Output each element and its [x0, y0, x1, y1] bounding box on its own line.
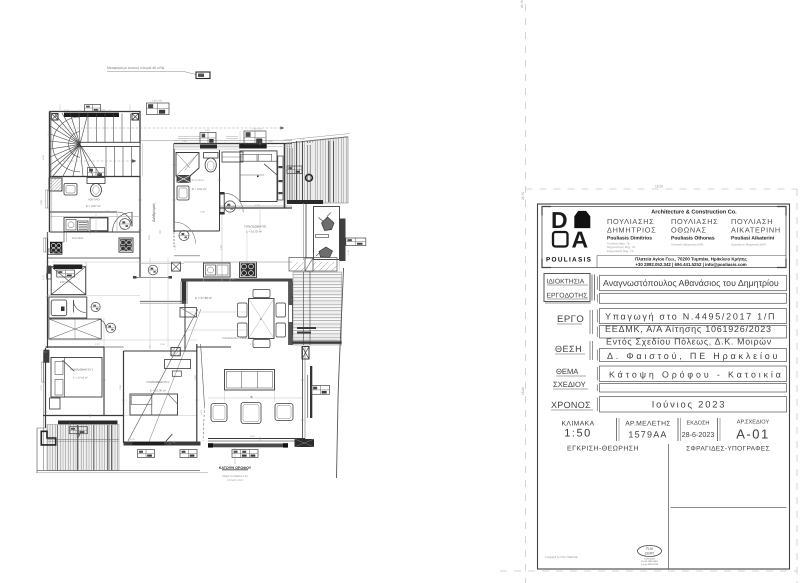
svg-text:1.16: 1.16 — [347, 250, 350, 255]
svg-text:Ε = 10.00 m²: Ε = 10.00 m² — [150, 389, 166, 393]
svg-text:TUV: TUV — [646, 547, 654, 551]
svg-text:Πολιτικός Μηχανικός ΑΠΘ: Πολιτικός Μηχανικός ΑΠΘ — [671, 243, 704, 247]
svg-text:1.46 1.16: 1.46 1.16 — [95, 109, 106, 112]
svg-text:Ε = 4.51 m²: Ε = 4.51 m² — [192, 187, 207, 191]
svg-text:Α-01: Α-01 — [736, 427, 769, 442]
svg-text:Ιούνιος 2023: Ιούνιος 2023 — [652, 399, 727, 410]
svg-text:POULIASIS: POULIASIS — [546, 257, 592, 264]
svg-text:2.52: 2.52 — [194, 375, 197, 380]
svg-text:CERT: CERT — [645, 552, 654, 556]
svg-text:ΥΠΝΟΔΩΜΑΤΙΟ 2: ΥΠΝΟΔΩΜΑΤΙΟ 2 — [146, 380, 169, 384]
svg-text:ΣΦΡΑΓΙΔΕΣ-ΥΠΟΓΡΑΦΕΣ: ΣΦΡΑΓΙΔΕΣ-ΥΠΟΓΡΑΦΕΣ — [686, 446, 770, 453]
svg-text:A: A — [572, 227, 589, 253]
svg-text:1579ΑΑ: 1579ΑΑ — [628, 430, 667, 440]
svg-text:ΑΙΚΑΤΕΡΙΝΗ: ΑΙΚΑΤΕΡΙΝΗ — [731, 226, 781, 235]
svg-text:1.40: 1.40 — [200, 410, 203, 415]
svg-text:3.10: 3.10 — [42, 275, 45, 280]
svg-text:1.46 1.16: 1.46 1.16 — [252, 128, 263, 131]
svg-text:2.88: 2.88 — [200, 211, 205, 214]
svg-text:Πλατεία Αγίου Γεω., 70200 Τυμπ: Πλατεία Αγίου Γεω., 70200 Τυμπάκι, Ηράκλ… — [635, 257, 747, 262]
svg-text:2.60: 2.60 — [284, 170, 287, 175]
svg-text:Σ-myc 9001:2015: Σ-myc 9001:2015 — [641, 563, 659, 566]
svg-text:2.90: 2.90 — [40, 200, 43, 205]
svg-text:Architecture & Construction Co: Architecture & Construction Co. — [651, 209, 737, 216]
svg-text:Ε = 10.43 m²: Ε = 10.43 m² — [246, 230, 262, 234]
svg-text:18.20: 18.20 — [655, 185, 663, 189]
svg-text:Διάδρομος: Διάδρομος — [151, 203, 156, 222]
svg-text:TH.08.1001.0901: TH.08.1001.0901 — [641, 560, 659, 563]
svg-text:ΘΕΜΑ: ΘΕΜΑ — [556, 367, 579, 376]
svg-text:2.10: 2.10 — [95, 343, 100, 346]
svg-text:Εντός Σχεδίου Πόλεως, Δ.Κ. Μοι: Εντός Σχεδίου Πόλεως, Δ.Κ. Μοιρών — [606, 337, 772, 347]
svg-text:1.40: 1.40 — [205, 129, 210, 132]
svg-text:ΥΠΝΟΔΩΜΑΤΙΟ: ΥΠΝΟΔΩΜΑΤΙΟ — [244, 225, 267, 229]
svg-text:ΕΡΓΟΔΟΤΗΣ: ΕΡΓΟΔΟΤΗΣ — [547, 293, 588, 300]
svg-text:3.40: 3.40 — [40, 385, 43, 390]
svg-text:ΙΔΙΟΚΤΗΣΙΑ: ΙΔΙΟΚΤΗΣΙΑ — [547, 279, 585, 286]
svg-text:3.55: 3.55 — [42, 155, 45, 160]
svg-text:Pouliasis Othonas: Pouliasis Othonas — [671, 236, 715, 242]
svg-text:ΕΡΓΟ: ΕΡΓΟ — [557, 314, 584, 325]
svg-text:2.40: 2.40 — [230, 278, 235, 281]
svg-text:ΝΤΟΥΖΙΕΡΑ: ΝΤΟΥΖΙΕΡΑ — [192, 179, 205, 182]
svg-text:0.90: 0.90 — [148, 235, 151, 240]
svg-text:28-6-2023: 28-6-2023 — [682, 430, 715, 439]
svg-text:ΘΕΣΗ: ΘΕΣΗ — [555, 344, 582, 354]
svg-text:1.35: 1.35 — [182, 140, 187, 143]
svg-text:ΙΟΥΝΙΟΣ 2023: ΙΟΥΝΙΟΣ 2023 — [227, 479, 243, 482]
svg-text:1:50: 1:50 — [564, 428, 591, 440]
svg-text:ΚΛΙΜΑΚΑ: ΚΛΙΜΑΚΑ — [561, 421, 594, 428]
svg-text:ΣΧΕΔ. ΚΛΙΜΑΚΑ 1:50: ΣΧΕΔ. ΚΛΙΜΑΚΑ 1:50 — [222, 475, 248, 478]
svg-text:25.70: 25.70 — [520, 0, 524, 8]
svg-text:Ενεργειακός Μηχ. ΤΕ: Ενεργειακός Μηχ. ΤΕ — [607, 249, 634, 253]
svg-text:Ε = 37.86 m²: Ε = 37.86 m² — [195, 296, 212, 300]
svg-text:ΟΘΩΝΑΣ: ΟΘΩΝΑΣ — [671, 226, 707, 235]
svg-text:1.20: 1.20 — [120, 228, 125, 231]
svg-text:ΚΑΤΟΨΗ ΟΡΟΦΟΥ: ΚΑΤΟΨΗ ΟΡΟΦΟΥ — [219, 466, 252, 470]
svg-text:Κάτοψη Ορόφου - Κατοικία: Κάτοψη Ορόφου - Κατοικία — [609, 370, 784, 380]
svg-text:1.46: 1.46 — [308, 295, 311, 300]
svg-text:Αναγνωστόπουλος Αθανάσιος του: Αναγνωστόπουλος Αθανάσιος του Δημητρίου — [603, 278, 779, 288]
svg-text:2.46: 2.46 — [95, 173, 100, 176]
svg-text:Δ. Φαιστού, ΠΕ Ηρακλείου: Δ. Φαιστού, ΠΕ Ηρακλείου — [607, 351, 780, 361]
svg-text:Αρχιτέκτων Μηχανικός ΕΜΠ: Αρχιτέκτων Μηχανικός ΕΜΠ — [731, 243, 766, 247]
svg-text:ΣΧΕΔΙΟΥ: ΣΧΕΔΙΟΥ — [553, 380, 586, 389]
svg-text:2.88: 2.88 — [119, 385, 122, 390]
svg-text:0.90: 0.90 — [268, 140, 273, 143]
svg-text:Ε = 4.07 m²: Ε = 4.07 m² — [86, 204, 101, 208]
svg-text:ΑΡ.ΣΧΕΔΙΟΥ: ΑΡ.ΣΧΕΔΙΟΥ — [737, 420, 770, 426]
svg-text:3.05: 3.05 — [130, 438, 135, 441]
svg-text:×: × — [250, 395, 253, 401]
svg-text:1.95: 1.95 — [160, 343, 165, 346]
svg-text:Copyright by POL.PREPISE: Copyright by POL.PREPISE — [545, 556, 578, 559]
svg-text:3.52: 3.52 — [250, 435, 255, 438]
svg-text:ΣΥΡ. 3.05: ΣΥΡ. 3.05 — [60, 281, 72, 284]
svg-text:15.00: 15.00 — [521, 387, 525, 395]
svg-text:1.10: 1.10 — [174, 245, 177, 250]
svg-text:ΕΓΚΡΙΣΗ-ΘΕΩΡΗΣΗ: ΕΓΚΡΙΣΗ-ΘΕΩΡΗΣΗ — [567, 446, 639, 453]
svg-text:D: D — [551, 207, 568, 233]
svg-text:ΛΟΥΤΡΟ: ΛΟΥΤΡΟ — [88, 198, 100, 202]
svg-text:Technische: Technische — [644, 558, 656, 561]
svg-text:ΥΠΝΟΔΩΜΑΤΙΟ 1: ΥΠΝΟΔΩΜΑΤΙΟ 1 — [70, 368, 93, 372]
svg-text:Υπαγωγή στο Ν.4495/2017 1/Π: Υπαγωγή στο Ν.4495/2017 1/Π — [605, 311, 776, 321]
svg-text:3.30: 3.30 — [255, 204, 260, 207]
svg-text:2.75: 2.75 — [250, 343, 255, 346]
svg-text:ΚΟΥΖΙΝΑ: ΚΟΥΖΙΝΑ — [72, 237, 83, 240]
svg-text:ΔΗΜΗΤΡΙΟΣ: ΔΗΜΗΤΡΙΟΣ — [607, 226, 656, 235]
svg-text:ΕΕΔΜΚ, Α/Α Αίτησης 1061926/202: ΕΕΔΜΚ, Α/Α Αίτησης 1061926/2023 — [605, 324, 772, 334]
svg-text:1.10: 1.10 — [64, 109, 69, 112]
svg-text:ΕΚΔΟΣΗ: ΕΚΔΟΣΗ — [687, 421, 710, 427]
svg-text:ΑΡ.ΜΕΛΕΤΗΣ: ΑΡ.ΜΕΛΕΤΗΣ — [625, 421, 671, 428]
svg-text:ΧΡΟΝΟΣ: ΧΡΟΝΟΣ — [551, 400, 591, 410]
svg-text:Ε = 10.42 m²: Ε = 10.42 m² — [73, 377, 88, 380]
svg-text:0.75: 0.75 — [105, 210, 110, 213]
svg-text:1.80 0.95: 1.80 0.95 — [152, 100, 163, 103]
svg-text:4.10: 4.10 — [300, 138, 305, 141]
svg-text:2.05: 2.05 — [220, 245, 223, 250]
svg-text:25.70: 25.70 — [521, 192, 525, 200]
svg-text:Pouliasi Aikaterini: Pouliasi Aikaterini — [731, 236, 775, 242]
svg-text:+30 2892.052.342 | 694.441.5: +30 2892.052.342 | 694.441.5252 | info@p… — [635, 262, 746, 267]
svg-text:Μεταφορά με ανοικτή πλευρά 40: Μεταφορά με ανοικτή πλευρά 40 m²/Δ — [107, 66, 165, 70]
